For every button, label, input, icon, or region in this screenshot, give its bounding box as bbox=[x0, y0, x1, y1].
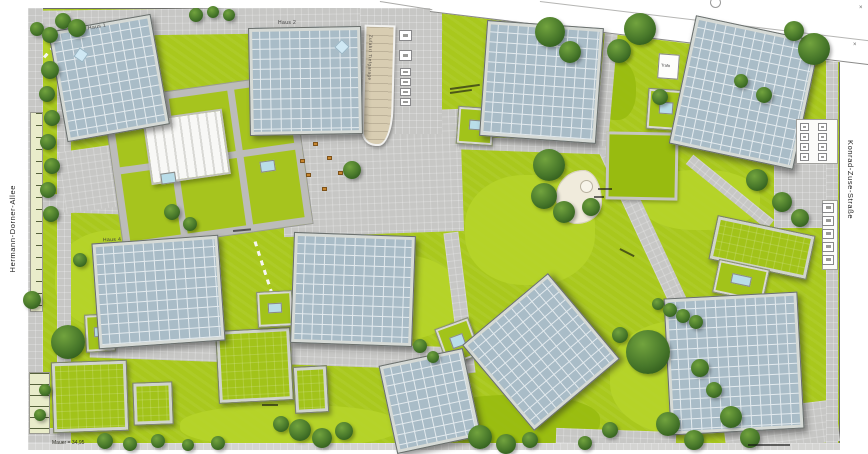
tree bbox=[468, 425, 492, 449]
building-south-center bbox=[379, 348, 482, 454]
tree bbox=[34, 409, 46, 421]
sign-box bbox=[400, 98, 411, 106]
tree bbox=[207, 6, 219, 18]
sign-box bbox=[822, 242, 834, 252]
tree bbox=[689, 315, 703, 329]
tree bbox=[211, 436, 225, 450]
micro-annotation bbox=[748, 444, 790, 446]
tree bbox=[40, 182, 56, 198]
bench bbox=[306, 173, 311, 177]
building-diamond bbox=[462, 273, 620, 431]
building-haus-1 bbox=[48, 14, 170, 142]
building-haus-4 bbox=[91, 235, 225, 350]
tree bbox=[73, 253, 87, 267]
street-label-konrad-zuse-strasse: Konrad-Zuse-Straße bbox=[846, 140, 855, 219]
tree bbox=[607, 39, 631, 63]
sign-box bbox=[399, 30, 412, 41]
sign-box bbox=[800, 133, 809, 141]
tree bbox=[164, 204, 180, 220]
tree bbox=[559, 41, 581, 63]
tree bbox=[183, 217, 197, 231]
sign-glyph bbox=[821, 126, 825, 128]
tree bbox=[652, 89, 668, 105]
sign-glyph bbox=[803, 126, 807, 128]
tree bbox=[791, 209, 809, 227]
sign-box bbox=[400, 78, 411, 86]
site-plan-canvas: Zufahrt Tiefgarage Trafo Haus 1 Haus 2 H… bbox=[0, 0, 868, 454]
sign-box bbox=[818, 133, 827, 141]
surveyor-mark: × bbox=[853, 42, 857, 48]
tree bbox=[43, 206, 59, 222]
tree bbox=[44, 158, 60, 174]
sign-box bbox=[800, 143, 809, 151]
tree bbox=[42, 27, 58, 43]
tree bbox=[522, 432, 538, 448]
micro-annotation bbox=[450, 84, 480, 90]
tree bbox=[734, 74, 748, 88]
tree bbox=[784, 21, 804, 41]
bench bbox=[338, 171, 343, 175]
label-haus-4: Haus 4 bbox=[103, 237, 121, 244]
pool bbox=[730, 273, 752, 287]
sign-glyph bbox=[403, 91, 408, 93]
trafo-station: Trafo bbox=[657, 53, 680, 79]
tree bbox=[335, 422, 353, 440]
sign-glyph bbox=[403, 71, 408, 73]
tree bbox=[496, 434, 516, 454]
tree bbox=[706, 382, 722, 398]
pool bbox=[268, 303, 282, 314]
sign-box bbox=[800, 153, 809, 161]
tree bbox=[531, 183, 557, 209]
green-roof-building bbox=[215, 327, 294, 404]
sign-box bbox=[822, 216, 834, 226]
sign-glyph bbox=[803, 136, 807, 138]
micro-annotation bbox=[594, 196, 604, 198]
sign-box bbox=[400, 68, 411, 76]
sign-glyph bbox=[826, 219, 831, 222]
sign-box bbox=[818, 123, 827, 131]
micro-annotation bbox=[233, 228, 251, 231]
tree bbox=[23, 291, 41, 309]
label-haus-2: Haus 2 bbox=[278, 20, 296, 26]
sign-glyph bbox=[821, 136, 825, 138]
tree bbox=[720, 406, 742, 428]
tree bbox=[676, 309, 690, 323]
sign-box bbox=[818, 143, 827, 151]
tree bbox=[612, 327, 628, 343]
street-label-hermann-dorner-allee: Hermann-Dorner-Allee bbox=[8, 185, 17, 272]
tree bbox=[41, 61, 59, 79]
tree bbox=[182, 439, 194, 451]
tree bbox=[40, 134, 56, 150]
micro-annotation bbox=[262, 404, 278, 406]
bench bbox=[327, 156, 332, 160]
sign-glyph bbox=[826, 232, 831, 235]
tree bbox=[151, 434, 165, 448]
tree bbox=[123, 437, 137, 451]
tree bbox=[413, 339, 427, 353]
sign-box bbox=[822, 229, 834, 239]
sign-glyph bbox=[826, 258, 831, 261]
tree bbox=[798, 33, 830, 65]
tree bbox=[289, 419, 311, 441]
tree bbox=[535, 17, 565, 47]
sign-glyph bbox=[803, 146, 807, 148]
tree bbox=[578, 436, 592, 450]
tree bbox=[772, 192, 792, 212]
green-roof-building bbox=[293, 365, 329, 414]
tree bbox=[553, 201, 575, 223]
tree bbox=[427, 351, 439, 363]
sign-box bbox=[818, 153, 827, 161]
tree bbox=[691, 359, 709, 377]
sign-box bbox=[800, 123, 809, 131]
roof-skylight bbox=[74, 47, 89, 62]
tree bbox=[663, 303, 677, 317]
building-mid-center bbox=[290, 232, 416, 347]
sign-box bbox=[399, 50, 412, 61]
tree bbox=[68, 19, 86, 37]
micro-annotation bbox=[450, 89, 472, 94]
tree bbox=[756, 87, 772, 103]
sign-glyph bbox=[403, 101, 408, 103]
tree bbox=[582, 198, 600, 216]
trafo-label: Trafo bbox=[661, 62, 671, 68]
sign-glyph bbox=[821, 156, 825, 158]
tree bbox=[602, 422, 618, 438]
pool-courtyard bbox=[256, 290, 294, 328]
tree bbox=[39, 384, 51, 396]
sign-glyph bbox=[821, 146, 825, 148]
tree bbox=[656, 412, 680, 436]
tree bbox=[223, 9, 235, 21]
micro-annotation bbox=[598, 188, 612, 190]
elevation-annotation: Mauer = 34,95 bbox=[52, 440, 84, 446]
tree bbox=[626, 330, 670, 374]
tree bbox=[189, 8, 203, 22]
bench bbox=[322, 187, 327, 191]
green-roof-building bbox=[51, 360, 129, 434]
green-roof-building bbox=[132, 381, 173, 425]
tree bbox=[97, 433, 113, 449]
sign-glyph bbox=[826, 245, 831, 248]
bench bbox=[300, 159, 305, 163]
sign-glyph bbox=[403, 81, 408, 83]
sign-box bbox=[822, 203, 834, 213]
building-haus-2 bbox=[248, 26, 363, 136]
plan-buildings-layer bbox=[0, 0, 868, 454]
tree bbox=[746, 169, 768, 191]
sign-box bbox=[822, 255, 834, 265]
micro-annotation bbox=[620, 248, 635, 257]
tree bbox=[273, 416, 289, 432]
roof-skylight bbox=[334, 39, 350, 55]
sign-glyph bbox=[803, 156, 807, 158]
tree bbox=[343, 161, 361, 179]
tree bbox=[51, 325, 85, 359]
tree bbox=[624, 13, 656, 45]
sign-box bbox=[400, 88, 411, 96]
sign-glyph bbox=[826, 206, 831, 209]
tree bbox=[39, 86, 55, 102]
tree bbox=[684, 430, 704, 450]
tree bbox=[44, 110, 60, 126]
bench bbox=[313, 142, 318, 146]
sign-glyph bbox=[403, 54, 409, 57]
tree bbox=[312, 428, 332, 448]
sign-glyph bbox=[403, 34, 409, 37]
surveyor-mark: × bbox=[859, 5, 863, 11]
tree bbox=[533, 149, 565, 181]
